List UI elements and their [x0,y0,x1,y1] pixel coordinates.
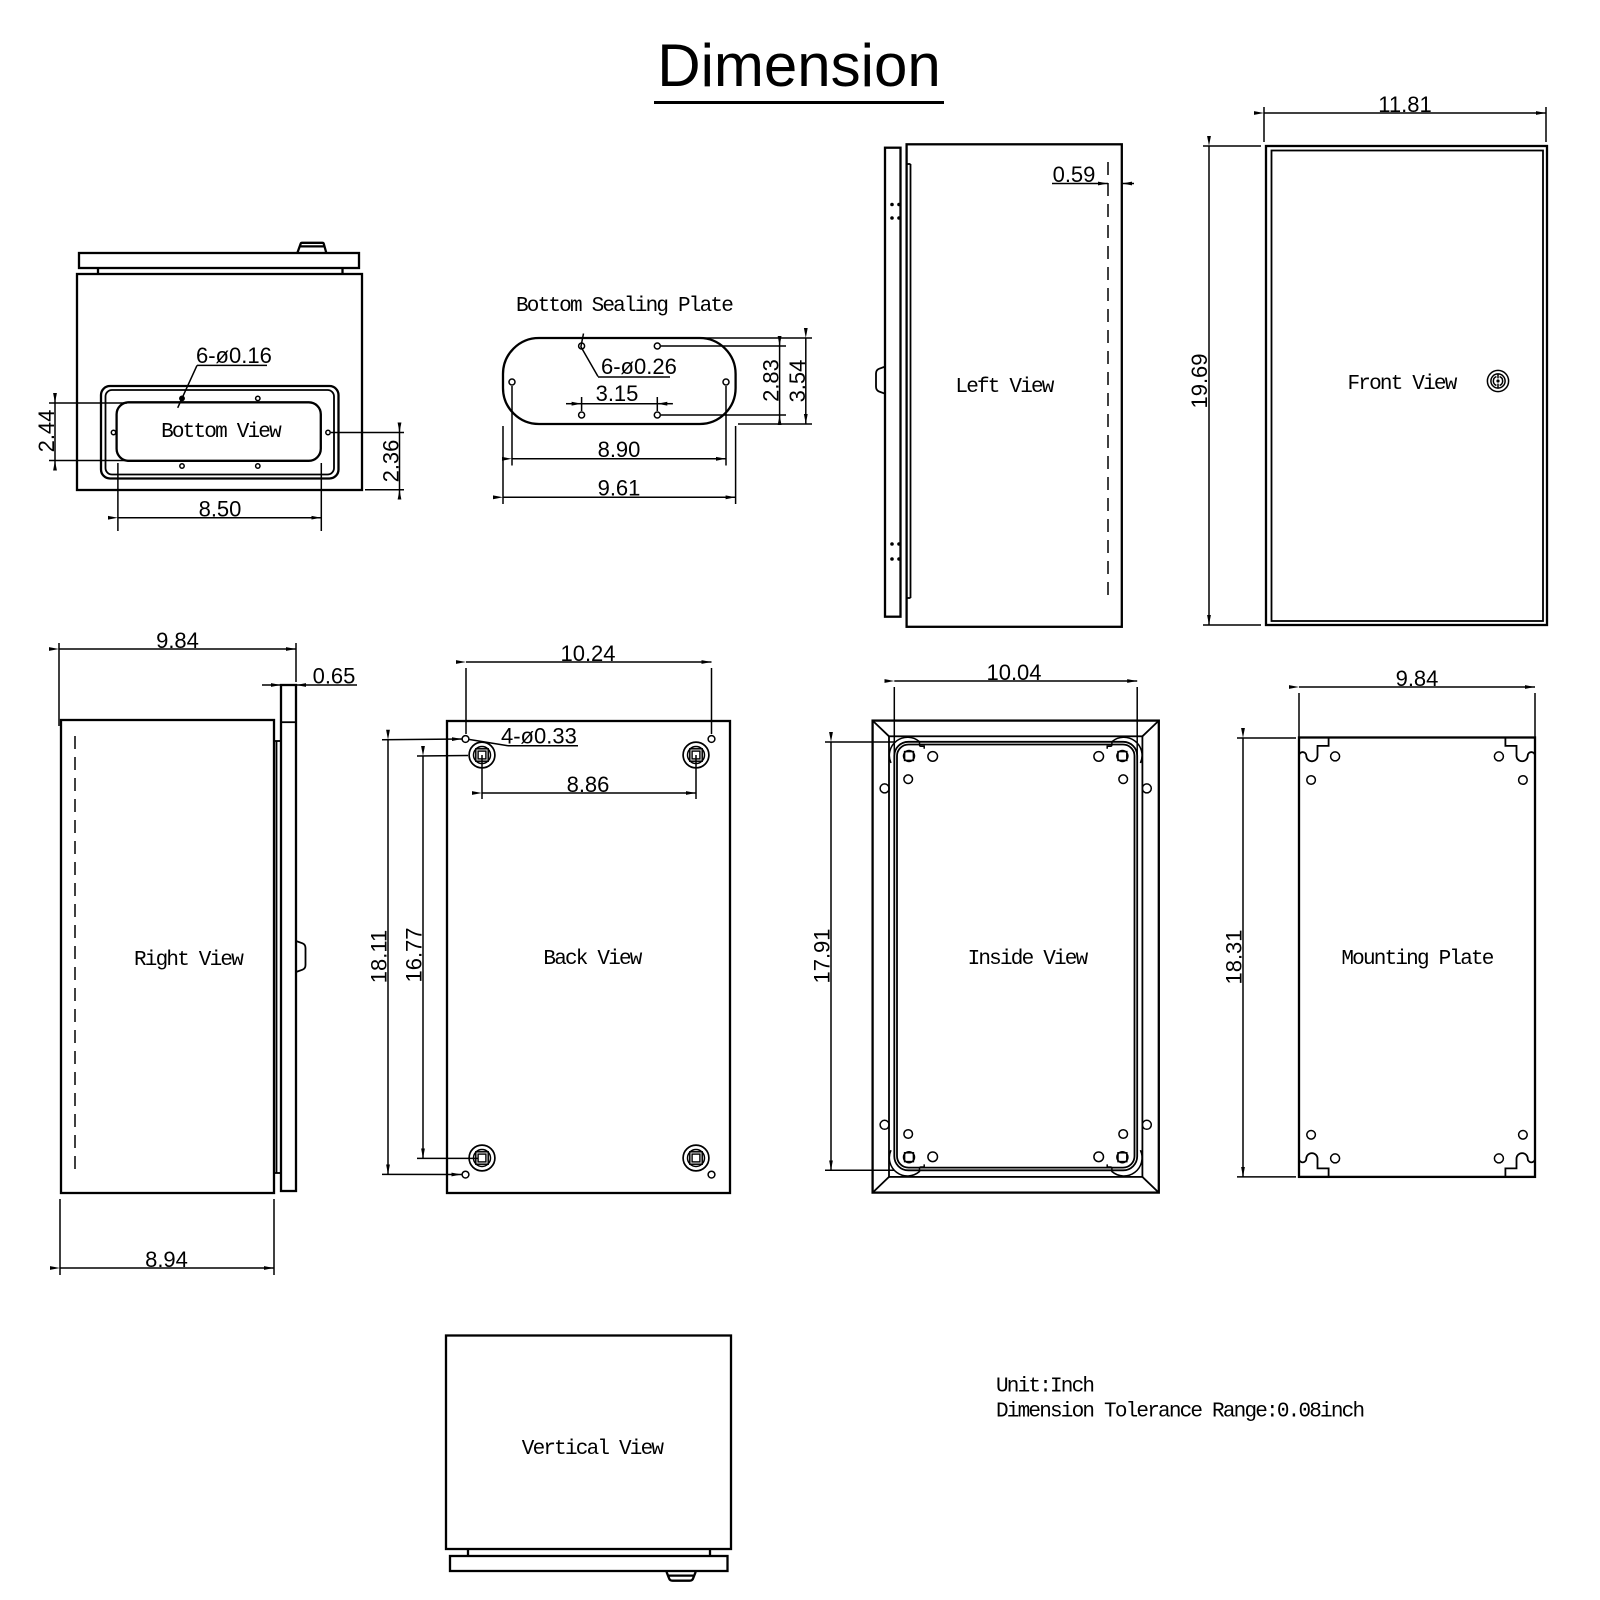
svg-text:Dimension Tolerance Range:0.08: Dimension Tolerance Range:0.08inch [996,1400,1363,1423]
svg-text:16.77: 16.77 [402,927,427,982]
svg-text:0.65: 0.65 [313,664,356,689]
svg-text:Back View: Back View [543,948,642,971]
svg-text:17.91: 17.91 [810,928,835,983]
svg-text:19.69: 19.69 [1187,353,1212,408]
svg-text:Front View: Front View [1347,373,1457,396]
svg-text:9.84: 9.84 [156,628,199,653]
svg-text:18.31: 18.31 [1222,929,1247,984]
svg-text:2.36: 2.36 [379,440,404,483]
svg-text:10.04: 10.04 [986,660,1041,685]
svg-text:3.54: 3.54 [785,360,810,403]
svg-text:Vertical View: Vertical View [522,1438,665,1461]
svg-text:3.15: 3.15 [596,381,639,406]
svg-text:9.84: 9.84 [1396,666,1439,691]
svg-text:Bottom View: Bottom View [161,421,282,444]
svg-text:Inside View: Inside View [968,948,1089,971]
svg-text:Left View: Left View [955,376,1054,399]
svg-text:8.94: 8.94 [145,1247,188,1272]
svg-text:2.44: 2.44 [34,410,59,453]
svg-text:8.86: 8.86 [567,772,610,797]
svg-text:Mounting Plate: Mounting Plate [1341,948,1493,971]
svg-text:6-ø0.16: 6-ø0.16 [196,343,272,368]
svg-text:18.11: 18.11 [367,930,392,983]
svg-text:10.24: 10.24 [560,641,615,666]
svg-text:9.61: 9.61 [598,476,641,501]
svg-text:Bottom Sealing Plate: Bottom Sealing Plate [516,295,733,318]
svg-text:Right View: Right View [134,949,244,972]
svg-text:2.83: 2.83 [759,359,784,402]
svg-text:8.50: 8.50 [199,497,242,522]
svg-text:8.90: 8.90 [598,437,641,462]
svg-text:Dimension: Dimension [657,32,940,99]
svg-text:6-ø0.26: 6-ø0.26 [601,354,677,379]
svg-text:11.81: 11.81 [1378,92,1431,117]
svg-text:Unit:Inch: Unit:Inch [996,1376,1093,1399]
